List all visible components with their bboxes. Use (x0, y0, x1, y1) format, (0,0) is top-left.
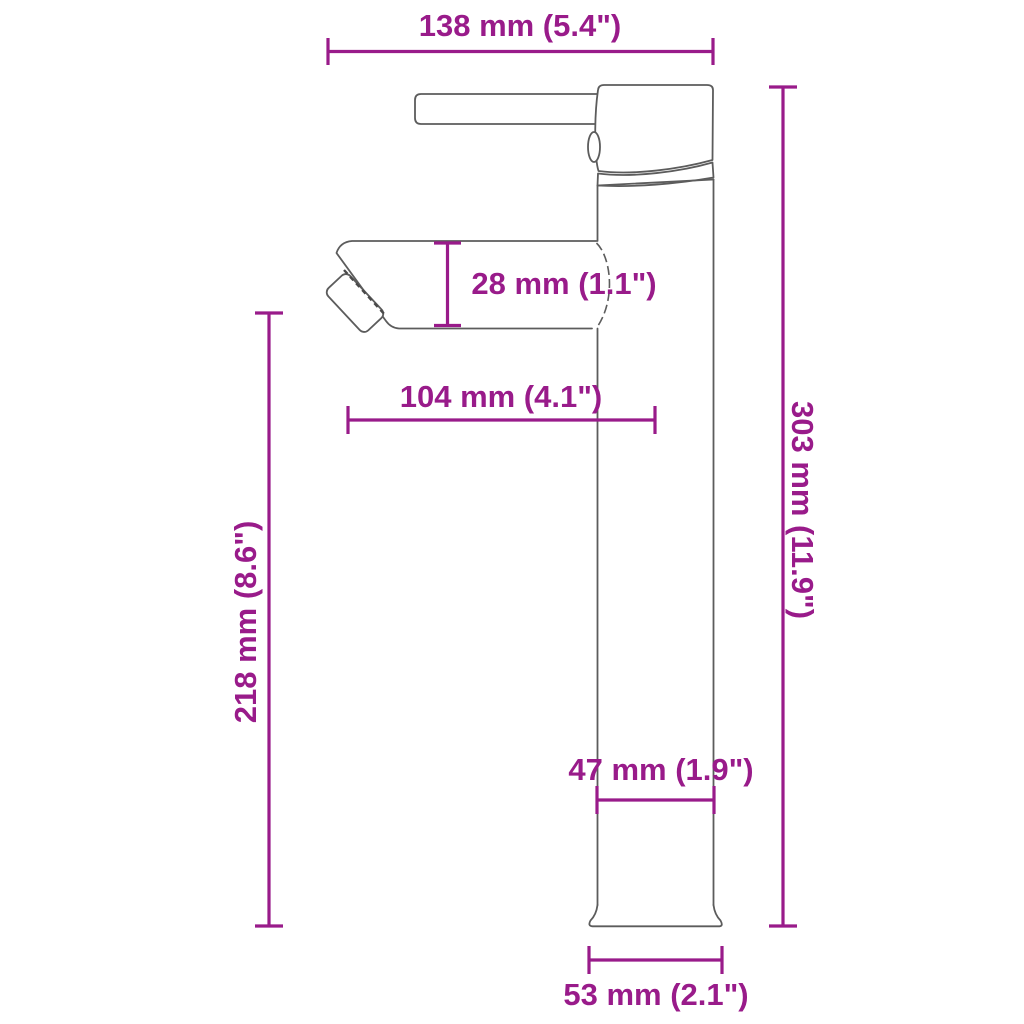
dimension-spout-depth-label: 28 mm (1.1") (471, 266, 656, 301)
dimension-spout-reach-label: 104 mm (4.1") (400, 379, 603, 414)
dimension-body-width: 47 mm (1.9") (568, 752, 753, 814)
faucet-pivot-detail (588, 132, 600, 162)
dimension-spout-clearance-label: 218 mm (8.6") (228, 521, 263, 724)
faucet-dimension-diagram: 138 mm (5.4") 28 mm (1.1") 104 mm (4.1")… (0, 0, 1024, 1024)
dimension-base-width: 53 mm (2.1") (563, 946, 748, 1012)
dimension-total-height-label: 303 mm (11.9") (785, 401, 820, 619)
dimension-spout-reach: 104 mm (4.1") (348, 379, 655, 434)
dimension-total-height: 303 mm (11.9") (769, 87, 820, 926)
dimension-spout-clearance: 218 mm (8.6") (228, 313, 283, 926)
dimension-body-width-line (597, 786, 714, 814)
faucet-handle-lever (415, 94, 598, 124)
dimension-base-width-line (589, 946, 722, 974)
dimension-base-width-label: 53 mm (2.1") (563, 977, 748, 1012)
faucet-base-flare (589, 905, 721, 926)
faucet-aerator (324, 272, 385, 335)
dimension-spout-depth-line (434, 243, 461, 326)
dimension-spout-depth: 28 mm (1.1") (434, 243, 657, 326)
dimension-top-width-label: 138 mm (5.4") (419, 8, 622, 43)
faucet-head-body (595, 85, 713, 172)
dimension-body-width-label: 47 mm (1.9") (568, 752, 753, 787)
dimension-top-width: 138 mm (5.4") (328, 8, 713, 65)
